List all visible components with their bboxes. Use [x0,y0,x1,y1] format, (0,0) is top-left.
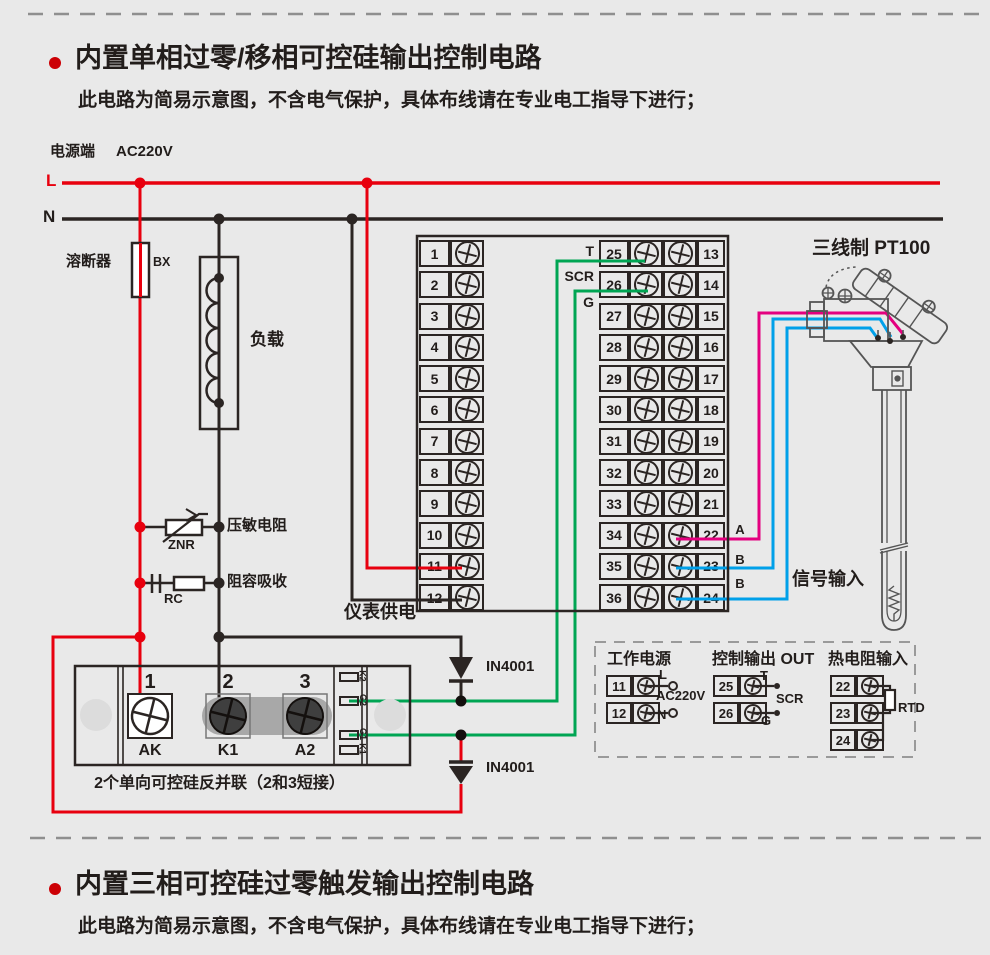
legend-t-label: T [760,669,768,683]
scr-module-caption: 2个单向可控硅反并联（2和3短接） [72,775,367,793]
legend-rtd-title: 热电阻输入 [828,651,908,669]
legend-n-label: N [657,708,666,722]
scr-terminal-number: 1 [135,671,165,693]
power-terminal-label: 电源端 [50,144,95,161]
load-label: 负载 [250,331,284,350]
varistor-label: 压敏电阻 [227,518,287,535]
varistor-code-label: ZNR [168,538,195,552]
legend-voltage-label: AC220V [656,689,705,703]
legend-power-title: 工作电源 [607,651,671,669]
legend-l-label: L [659,668,667,682]
wire-a-label: A [730,523,750,537]
legend-rtd-label: RTD [898,701,925,715]
strip-label-g2: G2 [357,694,367,706]
sensor-title: 三线制 PT100 [812,239,930,260]
snubber-code-label: RC [164,592,183,606]
out-scr-label: SCR [556,269,594,284]
snubber-label: 阻容吸收 [227,574,287,591]
wire-b1-label: B [730,553,750,567]
fuse-code-label: BX [153,256,170,270]
line-N-label: N [43,208,55,227]
scr-terminal-number: 3 [290,671,320,693]
strip-label-k1: K1 [357,743,367,755]
fuse-label: 溶断器 [66,254,111,271]
scr-terminal-name: K1 [206,742,250,760]
diode-bottom-label: IN4001 [486,760,534,777]
wire-b2-label: B [730,577,750,591]
bullet-icon [49,57,61,69]
scr-terminal-number: 2 [213,671,243,693]
scr-terminal-name: AK [128,742,172,760]
legend-output-title: 控制输出 OUT [712,651,814,669]
legend-g-label: G [761,714,771,728]
meter-supply-label: 仪表供电 [344,603,416,623]
bullet-icon [49,883,61,895]
signal-input-label: 信号输入 [792,570,864,590]
page-title-bottom: 内置三相可控硅过零触发输出控制电路 [75,870,534,900]
scr-terminal-name: A2 [283,742,327,760]
legend-scr-label: SCR [776,692,803,706]
line-L-label: L [46,172,56,191]
strip-label-g1: G1 [357,728,367,740]
wiring-diagram-page: 1 2 3 4 5 6 7 8 9 10 11 12 2513 2614 271… [0,0,990,955]
page-subtitle: 此电路为简易示意图，不含电气保护，具体布线请在专业电工指导下进行； [78,91,705,112]
strip-label-k2: K2 [357,670,367,682]
page-title: 内置单相过零/移相可控硅输出控制电路 [75,44,542,74]
out-t-label: T [568,244,594,259]
diode-top-label: IN4001 [486,659,534,676]
page-subtitle-bottom: 此电路为简易示意图，不含电气保护，具体布线请在专业电工指导下进行； [78,917,705,938]
power-voltage-label: AC220V [116,144,173,161]
text-layer: 内置单相过零/移相可控硅输出控制电路 此电路为简易示意图，不含电气保护，具体布线… [0,0,990,955]
out-g-label: G [568,295,594,310]
